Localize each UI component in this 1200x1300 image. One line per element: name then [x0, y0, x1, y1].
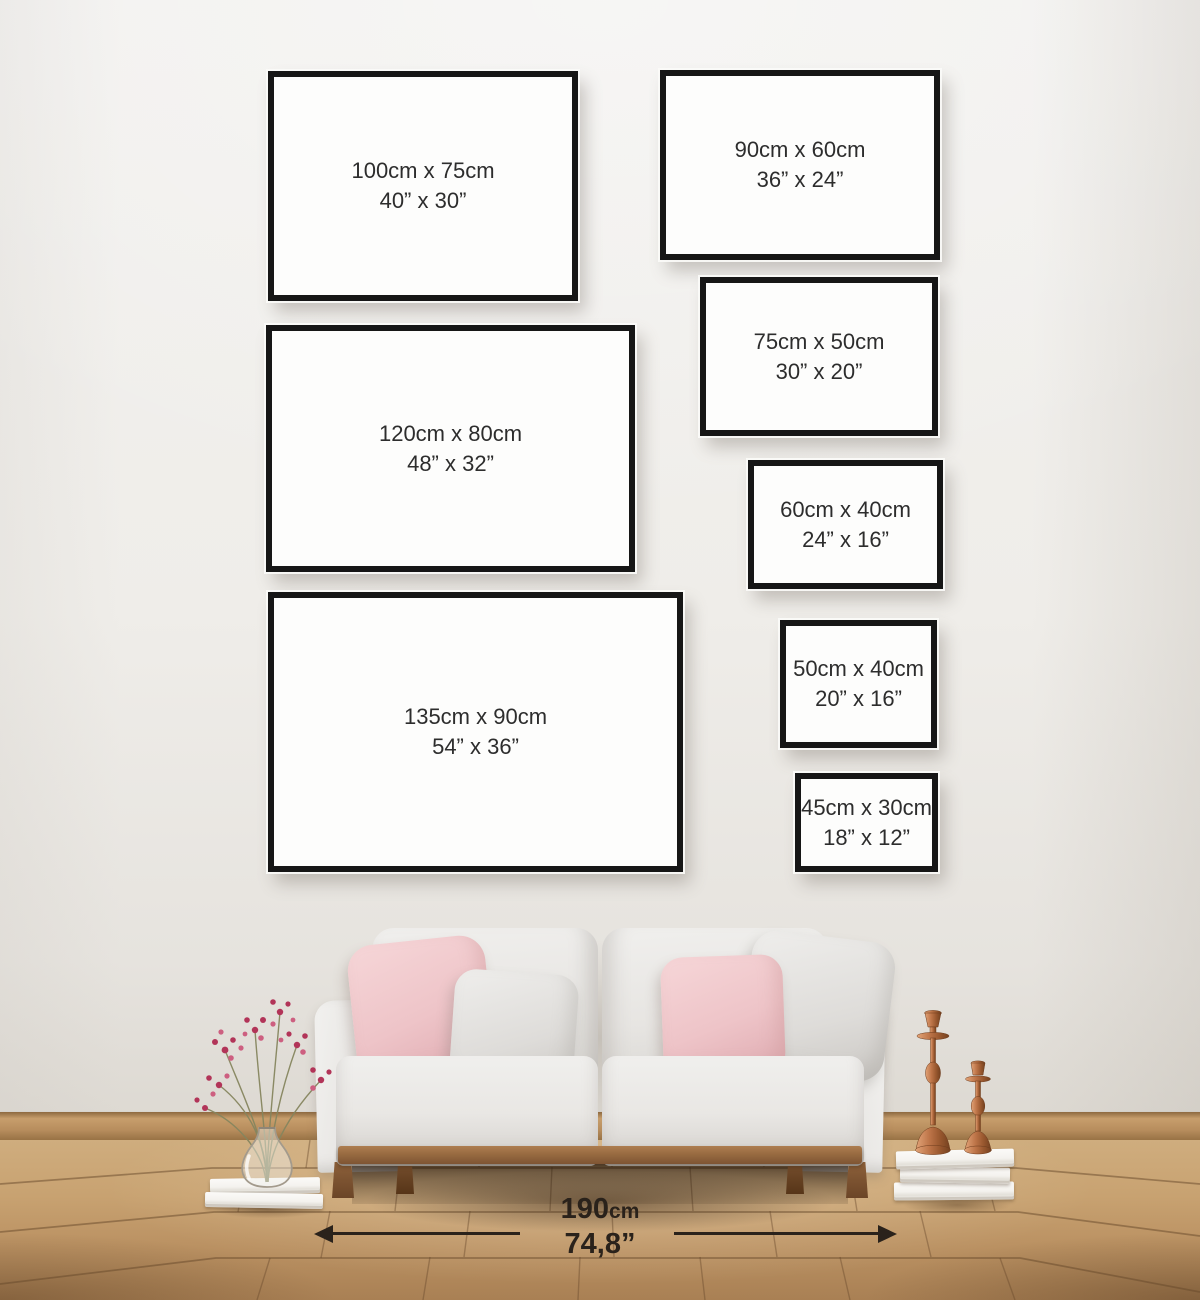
frame-size-label: 45cm x 30cm 18” x 12” [801, 793, 932, 853]
measurement-cm-unit: cm [609, 1200, 639, 1223]
size-inches: 30” x 20” [754, 357, 885, 387]
book-stack-bottom [894, 1181, 1014, 1200]
size-cm: 90cm x 60cm [735, 135, 866, 165]
sofa-leg-inner-right [786, 1162, 804, 1194]
frame-size-label: 100cm x 75cm 40” x 30” [351, 156, 494, 216]
size-inches: 20” x 16” [793, 684, 924, 714]
frame-100x75cm: 100cm x 75cm 40” x 30” [268, 71, 578, 301]
size-inches: 54” x 36” [404, 732, 547, 762]
frame-45x30cm: 45cm x 30cm 18” x 12” [795, 773, 938, 872]
measurement-cm: 190cm [450, 1193, 750, 1226]
flower-vase [185, 990, 345, 1205]
poster-size-guide-scene: { "frames": [ {"cm": "100cm x 75cm", "in… [0, 0, 1200, 1300]
size-cm: 50cm x 40cm [793, 654, 924, 684]
sofa-leg-front-right [846, 1162, 868, 1198]
frame-60x40cm: 60cm x 40cm 24” x 16” [748, 460, 943, 589]
frame-size-label: 90cm x 60cm 36” x 24” [735, 135, 866, 195]
frame-size-label: 60cm x 40cm 24” x 16” [780, 495, 911, 555]
tall-candlestick [916, 1010, 951, 1154]
size-cm: 75cm x 50cm [754, 327, 885, 357]
size-cm: 100cm x 75cm [351, 156, 494, 186]
sofa-wood-rail [338, 1146, 862, 1164]
size-inches: 40” x 30” [351, 186, 494, 216]
size-inches: 36” x 24” [735, 165, 866, 195]
frame-90x60cm: 90cm x 60cm 36” x 24” [660, 70, 940, 260]
baseboard [0, 1112, 1200, 1142]
size-cm: 45cm x 30cm [801, 793, 932, 823]
measurement-cm-value: 190 [561, 1193, 609, 1225]
size-inches: 48” x 32” [379, 449, 522, 479]
measurement-inches: 74,8” [450, 1228, 750, 1261]
frame-size-label: 75cm x 50cm 30” x 20” [754, 327, 885, 387]
size-inches: 18” x 12” [801, 823, 932, 853]
arrow-right-head [878, 1225, 897, 1243]
flower-blooms [194, 999, 331, 1111]
frame-size-label: 120cm x 80cm 48” x 32” [379, 419, 522, 479]
size-cm: 135cm x 90cm [404, 702, 547, 732]
frame-size-label: 135cm x 90cm 54” x 36” [404, 702, 547, 762]
frame-120x80cm: 120cm x 80cm 48” x 32” [266, 325, 635, 572]
frame-50x40cm: 50cm x 40cm 20” x 16” [780, 620, 937, 748]
sofa-leg-inner-left [396, 1162, 414, 1194]
frame-size-label: 50cm x 40cm 20” x 16” [793, 654, 924, 714]
frame-75x50cm: 75cm x 50cm 30” x 20” [700, 277, 938, 436]
size-cm: 120cm x 80cm [379, 419, 522, 449]
frame-135x90cm: 135cm x 90cm 54” x 36” [268, 592, 683, 872]
short-candlestick [965, 1061, 992, 1154]
size-inches: 24” x 16” [780, 525, 911, 555]
copper-candlesticks [890, 1005, 1020, 1170]
size-cm: 60cm x 40cm [780, 495, 911, 525]
